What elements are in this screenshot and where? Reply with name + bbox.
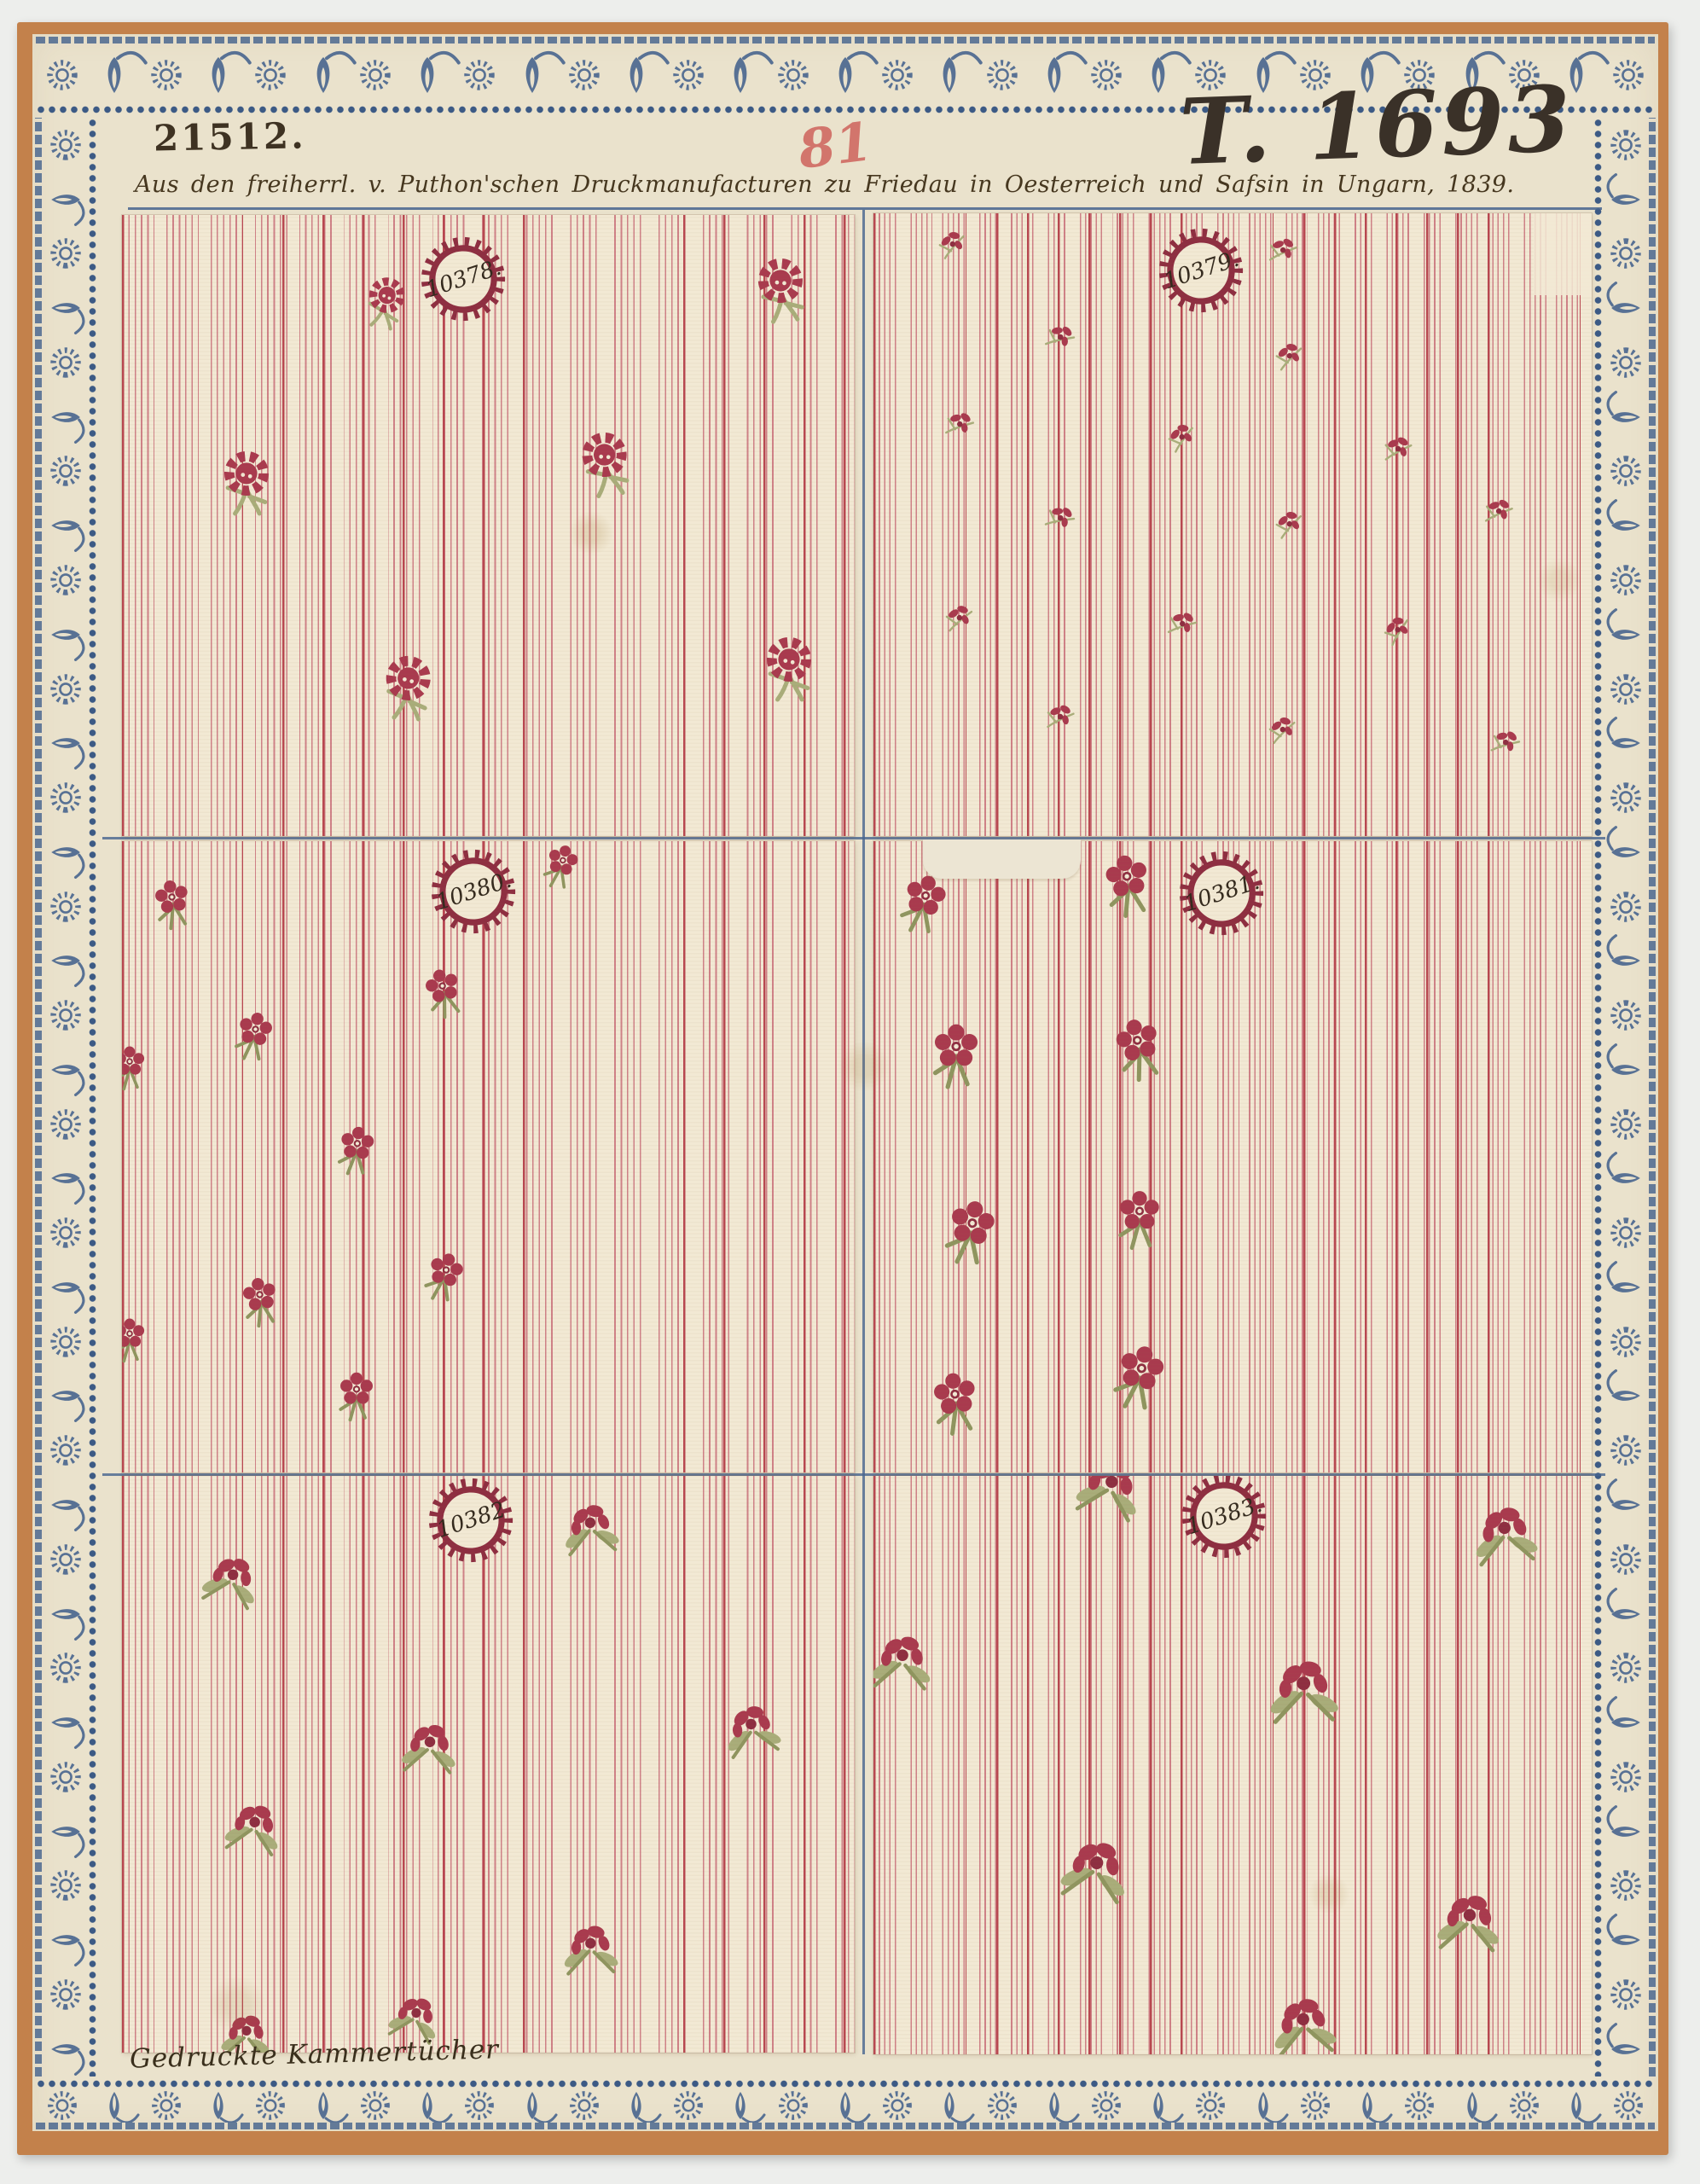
floral-sprig-icon xyxy=(122,1044,153,1092)
inventory-number: 21512. xyxy=(154,114,307,159)
border-ornament-column xyxy=(42,118,89,2077)
border-scallop-edge xyxy=(35,118,42,2077)
border-bead-line xyxy=(89,118,96,2077)
border-bud-icon xyxy=(722,2088,758,2123)
border-bud-icon xyxy=(1608,1481,1644,1529)
swatch-number-seal: 10383. xyxy=(1177,1476,1270,1562)
border-rosette-icon xyxy=(984,2088,1020,2123)
border-bud-icon xyxy=(1349,2088,1385,2123)
border-bud-icon xyxy=(1608,1699,1644,1746)
fabric-swatch-10379: 10379. xyxy=(873,213,1592,836)
border-rosette-icon xyxy=(48,1862,84,1909)
border-rosette-icon xyxy=(1088,50,1124,100)
border-bud-icon xyxy=(48,502,84,549)
border-rosette-icon xyxy=(1610,2088,1646,2123)
border-bud-icon xyxy=(1608,719,1644,767)
swatch-number-seal: 10382 xyxy=(424,1476,517,1567)
floral-sprig-icon xyxy=(1266,501,1314,549)
border-bud-icon xyxy=(514,50,550,100)
border-rosette-icon xyxy=(48,883,84,931)
floral-sprig-icon xyxy=(351,268,420,336)
border-bud-icon xyxy=(1608,284,1644,332)
border-bud-icon xyxy=(1608,1916,1644,1964)
border-bud-icon xyxy=(1608,1263,1644,1311)
floral-sprig-icon xyxy=(194,1541,270,1618)
border-rosette-icon xyxy=(1608,229,1644,277)
border-bud-icon xyxy=(1608,937,1644,985)
border-bud-icon xyxy=(1608,502,1644,549)
border-left xyxy=(32,116,99,2078)
floral-sprig-icon xyxy=(397,1714,463,1780)
missing-corner-notch xyxy=(1534,213,1592,295)
border-rosette-icon xyxy=(1608,1753,1644,1801)
border-ornament-row xyxy=(36,2088,1655,2123)
border-bud-icon xyxy=(48,176,84,224)
border-scallop-edge xyxy=(36,2123,1655,2129)
border-bud-icon xyxy=(409,50,445,100)
border-bud-icon xyxy=(1608,828,1644,876)
border-bud-icon xyxy=(827,2088,863,2123)
floral-sprig-icon xyxy=(1258,1644,1350,1736)
floral-sprig-icon xyxy=(1158,600,1207,648)
floral-sprig-icon xyxy=(1461,1490,1550,1578)
floral-sprig-icon xyxy=(1052,1825,1140,1913)
floral-sprig-icon xyxy=(554,1912,628,1985)
floral-sprig-icon xyxy=(533,841,591,895)
floral-sprig-icon xyxy=(369,648,446,725)
floral-sprig-icon xyxy=(938,596,982,640)
border-rosette-icon xyxy=(1608,121,1644,169)
border-bud-icon xyxy=(48,284,84,332)
border-bud-icon xyxy=(1454,2088,1490,2123)
paper-repair-patch xyxy=(923,839,1081,879)
border-rosette-icon xyxy=(1608,1862,1644,1909)
border-rosette-icon xyxy=(1608,339,1644,386)
floral-sprig-icon xyxy=(711,1689,792,1770)
border-bud-icon xyxy=(200,2088,236,2123)
border-ornament-column xyxy=(1602,118,1649,2077)
border-scallop-edge xyxy=(1649,118,1656,2077)
border-rosette-icon xyxy=(48,991,84,1039)
border-rosette-icon xyxy=(775,2088,811,2123)
border-bud-icon xyxy=(48,828,84,876)
red-page-number: 81 xyxy=(795,110,876,181)
border-bud-icon xyxy=(48,1590,84,1638)
border-bud-icon xyxy=(48,937,84,985)
border-rosette-icon xyxy=(48,1101,84,1148)
border-bud-icon xyxy=(931,50,967,100)
border-rosette-icon xyxy=(1608,1101,1644,1148)
border-rosette-icon xyxy=(48,447,84,495)
border-bud-icon xyxy=(48,1481,84,1529)
border-bud-icon xyxy=(1245,2088,1281,2123)
border-bud-icon xyxy=(48,1916,84,1964)
fabric-swatch-10378: 10378. xyxy=(122,215,855,836)
floral-sprig-icon xyxy=(753,632,825,704)
border-rosette-icon xyxy=(357,50,393,100)
border-rosette-icon xyxy=(461,50,497,100)
floral-sprig-icon xyxy=(936,401,983,449)
border-rosette-icon xyxy=(1608,883,1644,931)
floral-sprig-icon xyxy=(873,1624,938,1697)
grid-divider-vertical xyxy=(862,210,865,2054)
border-bud-icon xyxy=(48,1263,84,1311)
floral-sprig-icon xyxy=(1090,847,1167,924)
border-rosette-icon xyxy=(1608,1644,1644,1692)
floral-sprig-icon xyxy=(1038,695,1082,740)
floral-sprig-icon xyxy=(1035,312,1086,363)
floral-sprig-icon xyxy=(1260,1981,1349,2054)
border-rosette-icon xyxy=(252,50,288,100)
border-rosette-icon xyxy=(48,1209,84,1257)
floral-sprig-icon xyxy=(142,874,204,935)
border-bud-icon xyxy=(618,50,654,100)
border-rosette-icon xyxy=(1506,2088,1542,2123)
fabric-swatch-10383: 10383. xyxy=(873,1476,1592,2054)
border-rosette-icon xyxy=(1088,2088,1124,2123)
border-bud-icon xyxy=(48,1699,84,1746)
border-rosette-icon xyxy=(48,1644,84,1692)
border-bud-icon xyxy=(618,2088,654,2123)
border-bud-icon xyxy=(1608,1808,1644,1856)
border-rosette-icon xyxy=(148,50,184,100)
border-rosette-icon xyxy=(670,50,706,100)
floral-sprig-icon xyxy=(223,1006,285,1067)
sample-book-page: 21512. 81 T. 1693 Aus den freiherrl. v. … xyxy=(0,0,1700,2184)
border-rosette-icon xyxy=(984,50,1020,100)
floral-sprig-icon xyxy=(1267,334,1314,380)
border-rosette-icon xyxy=(48,121,84,169)
border-rosette-icon xyxy=(252,2088,288,2123)
floral-sprig-icon xyxy=(122,1316,153,1364)
floral-sprig-icon xyxy=(330,1370,383,1423)
border-rosette-icon xyxy=(44,2088,80,2123)
caption: Aus den freiherrl. v. Puthon'schen Druck… xyxy=(135,171,1514,198)
floral-sprig-icon xyxy=(1372,605,1424,657)
fabric-swatch-10382: 10382 xyxy=(122,1476,855,2053)
border-rosette-icon xyxy=(566,2088,602,2123)
border-bud-icon xyxy=(48,1154,84,1202)
floral-sprig-icon xyxy=(1376,428,1419,472)
border-rosette-icon xyxy=(1608,1318,1644,1366)
border-right xyxy=(1592,116,1658,2078)
floral-sprig-icon xyxy=(412,960,478,1025)
fabric-swatch-10381: 10381. xyxy=(873,841,1592,1472)
border-rosette-icon xyxy=(1608,991,1644,1039)
border-bud-icon xyxy=(48,2025,84,2073)
border-rosette-icon xyxy=(566,50,602,100)
border-bud-icon xyxy=(1608,1046,1644,1094)
floral-sprig-icon xyxy=(218,1791,291,1864)
border-rosette-icon xyxy=(1608,556,1644,604)
border-rosette-icon xyxy=(1608,1971,1644,2018)
border-bud-icon xyxy=(1608,611,1644,659)
border-bead-line xyxy=(36,2080,1655,2088)
floral-sprig-icon xyxy=(919,1365,994,1440)
border-rosette-icon xyxy=(44,50,80,100)
border-rosette-icon xyxy=(1608,1426,1644,1474)
border-bud-icon xyxy=(48,1046,84,1094)
border-rosette-icon xyxy=(775,50,811,100)
border-bud-icon xyxy=(1608,1372,1644,1420)
border-bud-icon xyxy=(1036,2088,1072,2123)
floral-sprig-icon xyxy=(566,423,647,504)
plate-number: T. 1693 xyxy=(1178,65,1575,185)
border-bud-icon xyxy=(1608,393,1644,441)
fabric-swatch-10380: 10380. xyxy=(122,841,855,1472)
border-rosette-icon xyxy=(48,1426,84,1474)
floral-sprig-icon xyxy=(1481,718,1530,768)
border-bud-icon xyxy=(514,2088,550,2123)
border-rosette-icon xyxy=(1608,774,1644,822)
border-rosette-icon xyxy=(48,1536,84,1583)
border-bud-icon xyxy=(96,2088,132,2123)
floral-sprig-icon xyxy=(412,1245,476,1309)
border-bud-icon xyxy=(48,719,84,767)
border-rosette-icon xyxy=(1401,2088,1437,2123)
border-bud-icon xyxy=(409,2088,445,2123)
border-bud-icon xyxy=(200,50,236,100)
border-rosette-icon xyxy=(48,1971,84,2018)
floral-sprig-icon xyxy=(1431,1883,1508,1960)
border-bud-icon xyxy=(1608,176,1644,224)
floral-sprig-icon xyxy=(1476,490,1521,535)
swatch-number-seal: 10381. xyxy=(1175,846,1268,939)
floral-sprig-icon xyxy=(1260,707,1305,752)
border-bud-icon xyxy=(1608,1154,1644,1202)
border-scallop-edge xyxy=(36,37,1655,44)
border-bud-icon xyxy=(305,2088,341,2123)
floral-sprig-icon xyxy=(1107,1188,1170,1252)
border-rosette-icon xyxy=(48,339,84,386)
floral-sprig-icon xyxy=(1035,492,1087,544)
swatch-number-seal: 10378. xyxy=(417,232,510,325)
border-rosette-icon xyxy=(1608,447,1644,495)
border-bud-icon xyxy=(48,611,84,659)
floral-sprig-icon xyxy=(1158,412,1208,462)
grid-divider-horizontal-1 xyxy=(102,837,1605,839)
floral-sprig-icon xyxy=(1099,1009,1180,1090)
border-bud-icon xyxy=(1608,1590,1644,1638)
border-bud-icon xyxy=(722,50,758,100)
floral-sprig-icon xyxy=(211,446,282,518)
border-rosette-icon xyxy=(148,2088,184,2123)
border-bead-line xyxy=(1594,118,1602,2077)
border-bud-icon xyxy=(305,50,341,100)
swatch-number-seal: 10379. xyxy=(1154,224,1247,317)
floral-sprig-icon xyxy=(921,1021,991,1091)
floral-sprig-icon xyxy=(230,1271,292,1333)
floral-sprig-icon xyxy=(1066,1476,1155,1531)
border-bottom xyxy=(32,2078,1658,2131)
border-bud-icon xyxy=(48,1808,84,1856)
floral-sprig-icon xyxy=(1098,1336,1181,1419)
border-rosette-icon xyxy=(48,774,84,822)
border-bud-icon xyxy=(96,50,132,100)
floral-sprig-icon xyxy=(928,220,976,268)
border-rosette-icon xyxy=(48,1753,84,1801)
border-bud-icon xyxy=(931,2088,967,2123)
border-bud-icon xyxy=(1036,50,1072,100)
border-rosette-icon xyxy=(48,665,84,713)
border-bud-icon xyxy=(48,393,84,441)
border-rosette-icon xyxy=(357,2088,393,2123)
floral-sprig-icon xyxy=(742,250,821,328)
border-rosette-icon xyxy=(670,2088,706,2123)
border-bud-icon xyxy=(1140,2088,1176,2123)
border-rosette-icon xyxy=(48,1318,84,1366)
border-bud-icon xyxy=(1608,2025,1644,2073)
border-bud-icon xyxy=(48,1372,84,1420)
floral-sprig-icon xyxy=(1260,228,1305,273)
border-rosette-icon xyxy=(1608,1209,1644,1257)
border-rosette-icon xyxy=(1610,50,1646,100)
floral-sprig-icon xyxy=(328,1122,386,1180)
floral-sprig-icon xyxy=(553,1490,630,1566)
border-rosette-icon xyxy=(879,50,915,100)
border-rosette-icon xyxy=(1192,2088,1228,2123)
border-bud-icon xyxy=(827,50,863,100)
border-rosette-icon xyxy=(48,556,84,604)
border-bud-icon xyxy=(1558,2088,1594,2123)
border-rosette-icon xyxy=(879,2088,915,2123)
border-rosette-icon xyxy=(461,2088,497,2123)
border-rosette-icon xyxy=(1608,665,1644,713)
border-rosette-icon xyxy=(1608,1536,1644,1583)
border-bud-icon xyxy=(1140,50,1176,100)
border-rosette-icon xyxy=(1297,2088,1333,2123)
caption-underline xyxy=(128,207,1602,210)
border-rosette-icon xyxy=(48,229,84,277)
floral-sprig-icon xyxy=(930,1192,1011,1273)
swatch-number-seal: 10380. xyxy=(427,845,520,938)
